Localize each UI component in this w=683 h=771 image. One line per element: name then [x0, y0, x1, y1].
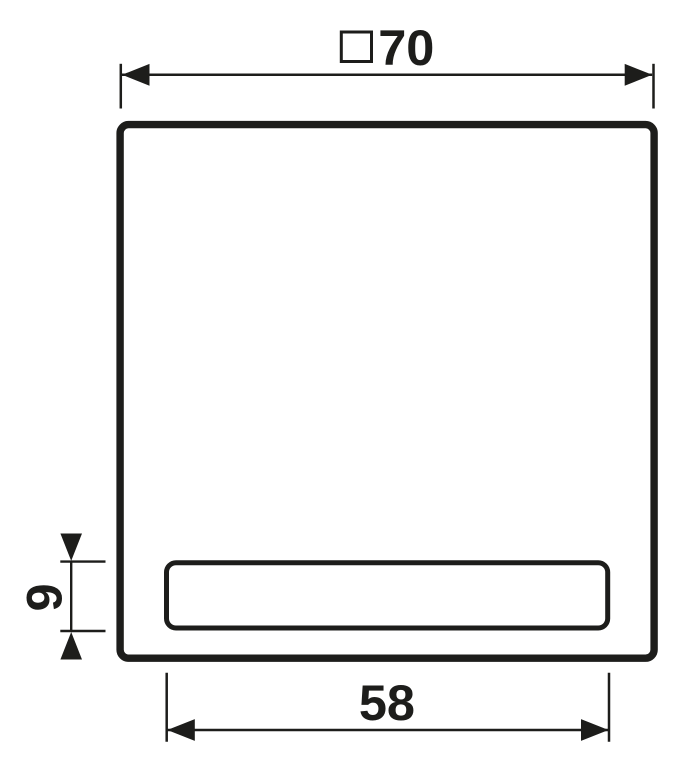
- svg-text:9: 9: [16, 583, 73, 611]
- svg-text:58: 58: [359, 674, 415, 731]
- svg-text:70: 70: [378, 19, 434, 76]
